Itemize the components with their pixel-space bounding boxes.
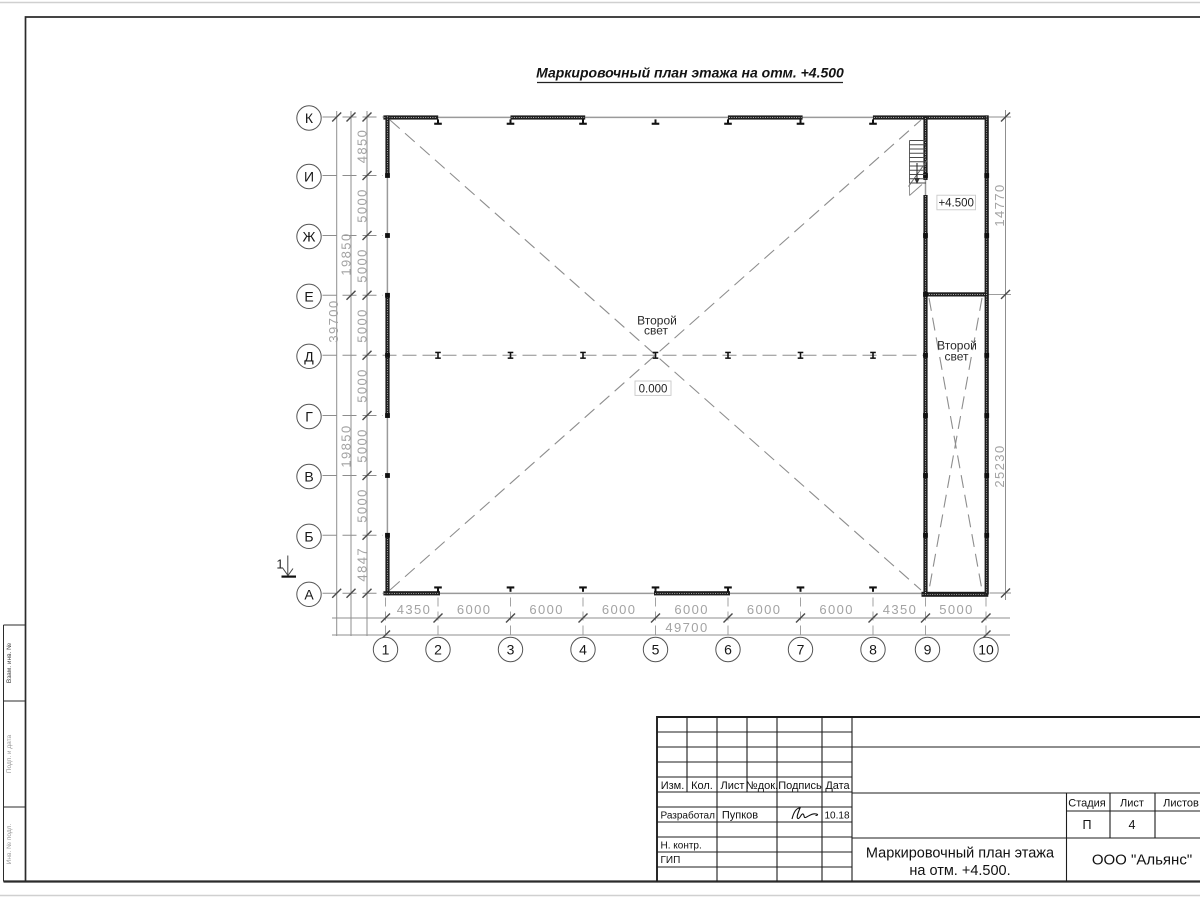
svg-text:+4.500: +4.500 bbox=[938, 198, 974, 210]
svg-text:Е: Е bbox=[304, 288, 313, 304]
svg-text:4847: 4847 bbox=[354, 547, 369, 582]
svg-text:Подпись: Подпись bbox=[778, 780, 822, 792]
svg-text:2: 2 bbox=[434, 642, 442, 658]
svg-text:свет: свет bbox=[644, 324, 669, 338]
svg-text:Н. контр.: Н. контр. bbox=[661, 841, 702, 852]
svg-text:Подп. и дата: Подп. и дата bbox=[6, 734, 13, 773]
svg-text:0.000: 0.000 bbox=[639, 383, 668, 395]
svg-text:Б: Б bbox=[304, 528, 313, 544]
svg-text:В: В bbox=[304, 469, 313, 485]
svg-text:ООО "Альянс": ООО "Альянс" bbox=[1092, 852, 1192, 869]
svg-text:6000: 6000 bbox=[819, 602, 854, 617]
svg-text:6000: 6000 bbox=[674, 602, 709, 617]
svg-text:6000: 6000 bbox=[457, 602, 492, 617]
svg-text:свет: свет bbox=[944, 350, 969, 364]
svg-text:5000: 5000 bbox=[939, 602, 974, 617]
svg-text:Лист: Лист bbox=[721, 780, 745, 792]
svg-text:А: А bbox=[304, 586, 314, 602]
svg-text:6000: 6000 bbox=[602, 602, 637, 617]
svg-text:4: 4 bbox=[1129, 818, 1136, 832]
svg-text:5000: 5000 bbox=[354, 308, 369, 343]
svg-text:14770: 14770 bbox=[992, 183, 1007, 226]
svg-text:Лист: Лист bbox=[1120, 798, 1144, 810]
svg-text:6: 6 bbox=[724, 642, 732, 658]
svg-text:4350: 4350 bbox=[883, 602, 918, 617]
svg-text:10: 10 bbox=[978, 642, 994, 658]
svg-text:49700: 49700 bbox=[665, 620, 708, 635]
svg-text:7: 7 bbox=[797, 642, 805, 658]
svg-text:Маркировочный план этажа на от: Маркировочный план этажа на отм. +4.500 bbox=[536, 65, 844, 81]
svg-text:№док.: №док. bbox=[746, 780, 778, 792]
svg-text:Кол.: Кол. bbox=[691, 780, 713, 792]
svg-text:5000: 5000 bbox=[354, 488, 369, 523]
svg-text:Г: Г bbox=[305, 409, 313, 425]
svg-text:5: 5 bbox=[652, 642, 660, 658]
svg-text:4: 4 bbox=[579, 642, 587, 658]
svg-text:8: 8 bbox=[869, 642, 877, 658]
svg-text:Стадия: Стадия bbox=[1068, 798, 1106, 810]
svg-text:5000: 5000 bbox=[354, 368, 369, 403]
svg-text:5000: 5000 bbox=[354, 188, 369, 223]
svg-text:ГИП: ГИП bbox=[661, 855, 681, 866]
svg-text:5000: 5000 bbox=[354, 428, 369, 463]
svg-text:Пупков: Пупков bbox=[722, 810, 758, 822]
svg-text:Разработал: Разработал bbox=[661, 810, 716, 822]
svg-text:4850: 4850 bbox=[354, 129, 369, 164]
svg-text:Изм.: Изм. bbox=[661, 780, 685, 792]
svg-text:Ж: Ж bbox=[303, 229, 316, 245]
svg-text:4350: 4350 bbox=[397, 602, 432, 617]
svg-text:6000: 6000 bbox=[747, 602, 782, 617]
svg-text:3: 3 bbox=[507, 642, 515, 658]
svg-text:1: 1 bbox=[382, 642, 390, 658]
svg-text:9: 9 bbox=[924, 642, 932, 658]
svg-text:Маркировочный план этажа: Маркировочный план этажа bbox=[866, 846, 1055, 862]
svg-text:Д: Д bbox=[304, 348, 314, 364]
svg-text:Взам. инв. №: Взам. инв. № bbox=[6, 643, 13, 683]
svg-text:К: К bbox=[305, 110, 314, 126]
svg-text:19850: 19850 bbox=[338, 232, 353, 275]
svg-text:Дата: Дата bbox=[825, 780, 850, 792]
svg-text:1: 1 bbox=[276, 557, 283, 572]
svg-text:39700: 39700 bbox=[326, 299, 341, 342]
svg-text:19850: 19850 bbox=[338, 424, 353, 467]
svg-text:Листов: Листов bbox=[1163, 798, 1199, 810]
svg-text:на отм. +4.500.: на отм. +4.500. bbox=[909, 863, 1010, 879]
svg-text:Инв. № подл.: Инв. № подл. bbox=[6, 824, 13, 865]
svg-text:10.18: 10.18 bbox=[824, 811, 849, 822]
svg-text:6000: 6000 bbox=[529, 602, 564, 617]
svg-text:П: П bbox=[1083, 818, 1092, 832]
svg-text:25230: 25230 bbox=[992, 444, 1007, 487]
svg-text:5000: 5000 bbox=[354, 248, 369, 283]
svg-text:И: И bbox=[304, 169, 314, 185]
